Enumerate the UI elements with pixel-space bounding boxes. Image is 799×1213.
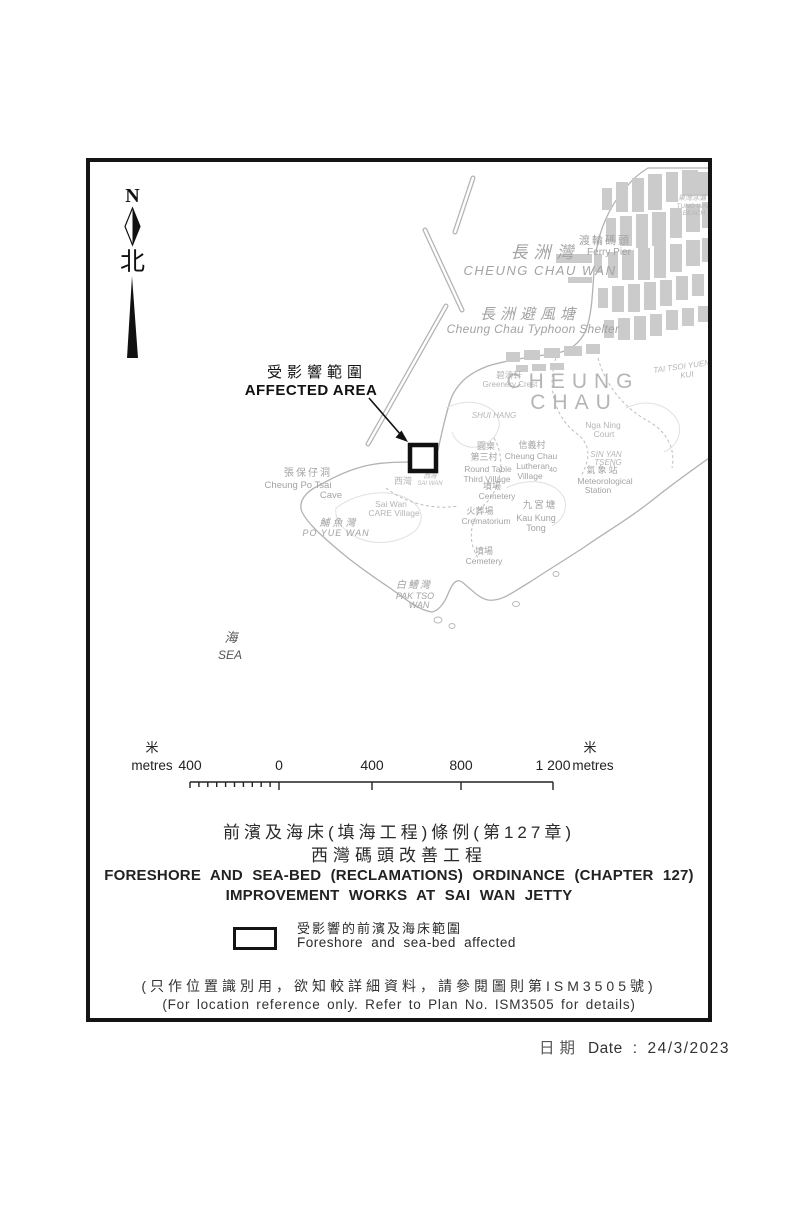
map-label-typhoon-shelter-zh: 長洲避風塘 (480, 306, 580, 323)
map-label-crematorium-en: Crematorium (461, 516, 510, 526)
date-separator: : (633, 1040, 638, 1057)
north-arrow-bei: 北 (120, 249, 145, 276)
date-label-zh: 日期 (539, 1040, 580, 1057)
title-chinese-line2: 西灣碼頭改善工程 (86, 841, 712, 866)
note-chinese: (只作位置識別用，欲知較詳細資料，請參閱圖則第ISM3505號) (86, 976, 712, 996)
map-label-cheung-po-tsai-en2: Cave (320, 490, 342, 501)
scale-unit-en-left: metres (131, 758, 173, 773)
map-label-round-table-zh2: 第三村 (470, 451, 497, 462)
map-label-sai-wan-village-zh: 西灣 (394, 475, 412, 486)
map-label-tung-wan-beach-en2: BEACH (683, 210, 706, 217)
plan-sheet: 東灣泳灘 TUNG WAN BEACH 渡輪碼頭 Ferry Pier 長洲灣 … (0, 0, 799, 1213)
map-label-lutheran-en1: Cheung Chau (505, 451, 558, 461)
scale-tick-1200: 1 200 (535, 757, 570, 773)
map-label-shui-hang: SHUI HANG (472, 411, 516, 420)
north-arrow-n: N (125, 185, 140, 207)
map-label-round-table-en1: Round Table (464, 464, 512, 474)
map-label-pak-tso-wan-zh: 白鰽灣 (396, 579, 432, 591)
scale-tick-400: 400 (360, 757, 384, 773)
title-chinese-line1: 前濱及海床(填海工程)條例(第127章) (86, 818, 712, 843)
note-english: (For location reference only. Refer to P… (86, 997, 712, 1012)
map-label-cemetery1-en: Cemetery (479, 491, 517, 501)
map-label-spot-height: 40 (549, 467, 557, 474)
north-arrow: N 北 (120, 185, 145, 358)
date-label-en: Date (588, 1040, 623, 1057)
map-label-kau-kung-tong-en1: Kau Kung (516, 513, 556, 523)
map-label-lutheran-en3: Village (517, 471, 543, 481)
affected-area-box (410, 445, 436, 471)
legend-label-zh: 受影響的前濱及海床範圍 (297, 922, 516, 936)
title-english-line1: FORESHORE AND SEA-BED (RECLAMATIONS) ORD… (86, 867, 712, 884)
map-label-tung-wan-beach-en1: TUNG WAN (676, 203, 708, 210)
map-label-cheung-chau-wan-zh: 長洲灣 (511, 243, 580, 262)
scale-bar-ticks (190, 782, 553, 790)
scale-bar: 米 metres 400 0 400 800 1 200 米 metres (131, 740, 614, 790)
map-label-cemetery2-zh: 墳場 (475, 545, 493, 556)
map-label-po-yue-wan-en: PO YUE WAN (302, 528, 369, 538)
affected-area-arrowhead (396, 431, 409, 443)
map-label-kau-kung-tong-zh: 九宮塘 (523, 499, 558, 511)
scale-tick-0: 0 (275, 757, 283, 773)
date-value: 24/3/2023 (648, 1040, 730, 1057)
map-label-lutheran-zh: 信義村 (518, 439, 545, 450)
scale-tick-400L: 400 (178, 757, 202, 773)
map-label-greenery-crest-zh: 碧濤軒 (496, 370, 522, 380)
map-label-greenery-crest-en: Greenery Crest (483, 380, 538, 389)
map-label-cemetery1-zh: 墳場 (483, 480, 501, 491)
title-english-line2: IMPROVEMENT WORKS AT SAI WAN JETTY (86, 887, 712, 904)
scale-unit-zh-right: 米 (583, 740, 596, 755)
map-label-typhoon-shelter-en: Cheung Chau Typhoon Shelter (447, 322, 620, 336)
map-label-cemetery2-en: Cemetery (466, 556, 504, 566)
map-label-sai-wan-bay-en: SAI WAN (417, 481, 443, 487)
map-label-ferry-pier-en: Ferry Pier (587, 247, 632, 258)
legend-label-en: Foreshore and sea-bed affected (297, 936, 516, 950)
map-svg: 東灣泳灘 TUNG WAN BEACH 渡輪碼頭 Ferry Pier 長洲灣 … (90, 162, 708, 812)
map-label-met-station-zh: 氣象站 (586, 464, 619, 475)
scale-unit-zh-left: 米 (145, 740, 158, 755)
map-label-ferry-pier-zh: 渡輪碼頭 (579, 233, 631, 247)
map-label-lutheran-en2: Lutheran (516, 461, 550, 471)
map-label-round-table-zh1: 圓桌 (477, 440, 495, 451)
map-label-cheung-chau-l2: CHAU (530, 391, 618, 414)
affected-area-label-en: AFFECTED AREA (245, 382, 378, 399)
map-label-sai-wan-village-en2: CARE Village (368, 508, 420, 518)
scale-tick-800: 800 (449, 757, 473, 773)
map-label-tung-wan-beach: 東灣泳灘 (678, 194, 707, 202)
north-arrow-needle (127, 276, 138, 358)
legend-affected-symbol (233, 927, 277, 950)
map-label-kau-kung-tong-en2: Tong (526, 523, 546, 533)
map-label-sea-en: SEA (218, 648, 242, 662)
map-label-nga-ning-court-en2: Court (594, 429, 615, 439)
map-label-pak-tso-wan-en2: WAN (409, 600, 430, 610)
map-label-cheung-po-tsai-zh: 張保仔洞 (284, 466, 332, 479)
date-line: 日期Date:24/3/2023 (539, 1036, 730, 1058)
map-label-met-station-en2: Station (585, 485, 612, 495)
map-label-sea-zh: 海 (224, 630, 239, 645)
map-label-crematorium-zh: 火葬場 (466, 505, 493, 516)
map-label-cheung-chau-wan-en: CHEUNG CHAU WAN (464, 263, 617, 278)
legend-text: 受影響的前濱及海床範圍 Foreshore and sea-bed affect… (297, 922, 516, 950)
scale-unit-en-right: metres (572, 758, 614, 773)
north-arrow-diamond-fill (133, 208, 141, 245)
affected-area-label-zh: 受影響範圍 (267, 363, 367, 381)
